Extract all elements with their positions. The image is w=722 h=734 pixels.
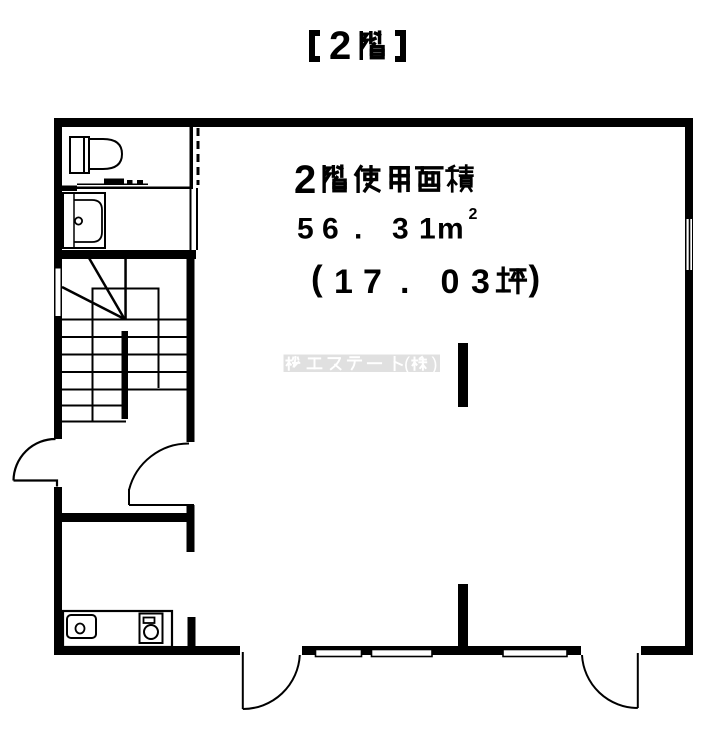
svg-text:3: 3 bbox=[471, 263, 490, 301]
svg-text:5: 5 bbox=[297, 213, 314, 246]
svg-text:1: 1 bbox=[419, 213, 436, 246]
svg-text:3: 3 bbox=[392, 213, 409, 246]
svg-text:): ) bbox=[432, 354, 438, 374]
svg-text:2: 2 bbox=[469, 206, 478, 223]
svg-text:7: 7 bbox=[363, 263, 382, 301]
svg-text:2: 2 bbox=[294, 158, 316, 202]
svg-text:(: ( bbox=[404, 354, 410, 374]
svg-text:.: . bbox=[354, 213, 362, 246]
svg-text:0: 0 bbox=[441, 263, 460, 301]
svg-text:m: m bbox=[437, 213, 464, 246]
svg-text:2: 2 bbox=[329, 24, 351, 68]
svg-text:(: ( bbox=[311, 259, 323, 298]
svg-text:): ) bbox=[529, 259, 541, 298]
svg-text:6: 6 bbox=[322, 213, 339, 246]
svg-text:.: . bbox=[400, 263, 409, 301]
svg-text:1: 1 bbox=[334, 263, 353, 301]
